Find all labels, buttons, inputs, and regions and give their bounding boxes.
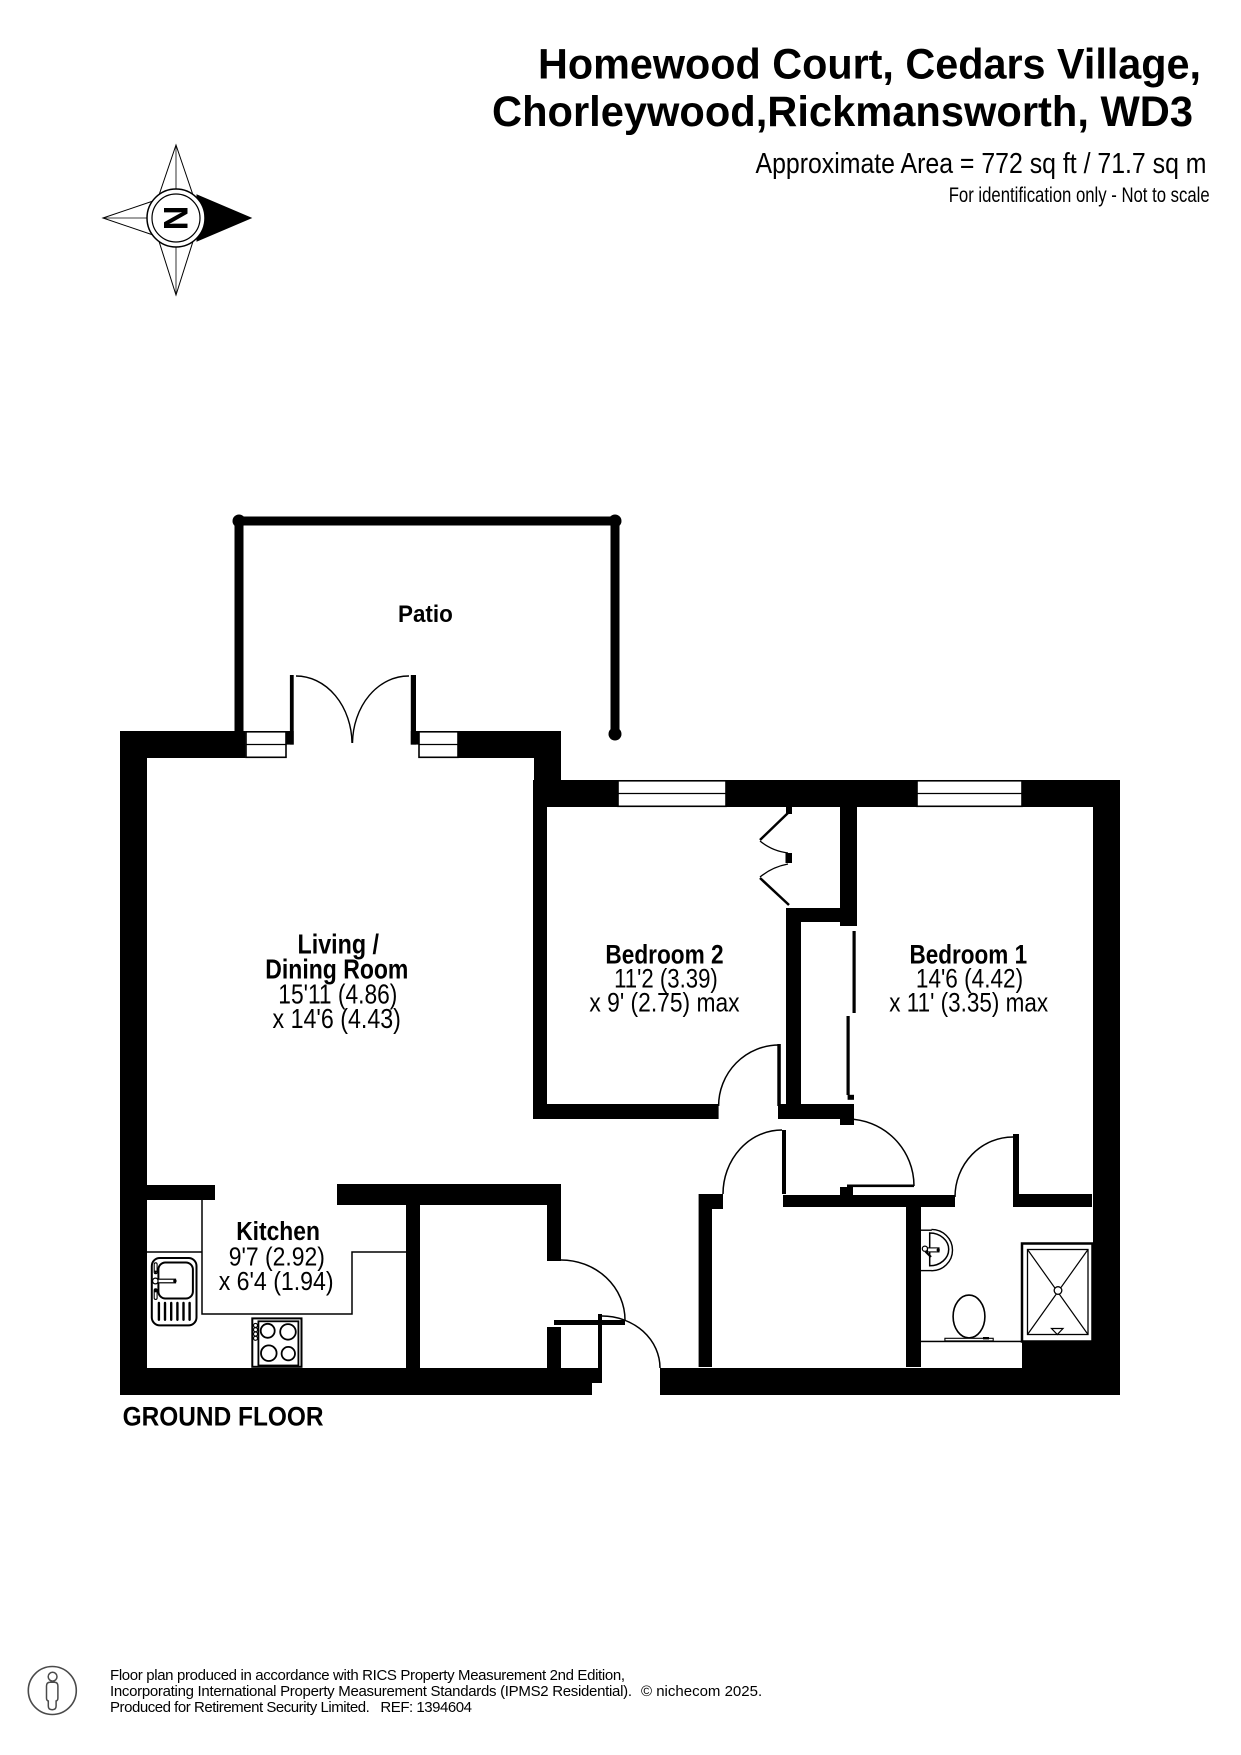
svg-text:Chorleywood,Rickmansworth, WD3: Chorleywood,Rickmansworth, WD3 bbox=[492, 89, 1193, 136]
svg-text:GROUND FLOOR: GROUND FLOOR bbox=[123, 1401, 324, 1431]
svg-text:For identification only - Not: For identification only - Not to scale bbox=[949, 184, 1210, 207]
svg-text:x 14'6 (4.43): x 14'6 (4.43) bbox=[273, 1003, 401, 1034]
svg-text:x 11' (3.35) max: x 11' (3.35) max bbox=[889, 988, 1048, 1018]
svg-text:Approximate Area = 772 sq ft /: Approximate Area = 772 sq ft / 71.7 sq m bbox=[756, 148, 1207, 180]
svg-text:Floor plan produced in accorda: Floor plan produced in accordance with R… bbox=[110, 1667, 625, 1684]
svg-text:Produced for Retirement Securi: Produced for Retirement Security Limited… bbox=[110, 1699, 472, 1716]
svg-text:x 6'4 (1.94): x 6'4 (1.94) bbox=[219, 1266, 334, 1296]
svg-text:© nichecom 2025.: © nichecom 2025. bbox=[641, 1683, 762, 1700]
svg-text:Patio: Patio bbox=[398, 601, 453, 628]
svg-text:Incorporating International Pr: Incorporating International Property Mea… bbox=[110, 1683, 632, 1700]
svg-text:x 9' (2.75) max: x 9' (2.75) max bbox=[589, 988, 739, 1018]
svg-text:Homewood Court, Cedars Village: Homewood Court, Cedars Village, bbox=[538, 42, 1201, 89]
svg-text:N: N bbox=[156, 206, 194, 231]
